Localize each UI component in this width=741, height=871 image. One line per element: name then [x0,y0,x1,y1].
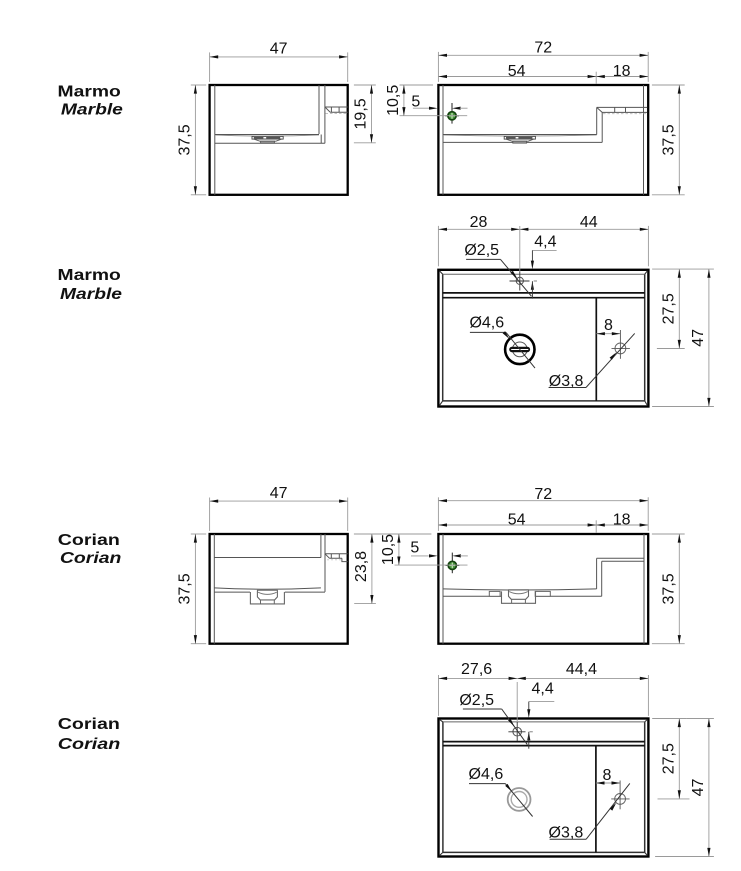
svg-text:18: 18 [613,511,631,528]
svg-text:47: 47 [270,41,288,58]
svg-text:8: 8 [602,767,611,784]
svg-text:Ø2,5: Ø2,5 [464,242,499,259]
svg-text:Ø4,6: Ø4,6 [469,766,504,783]
svg-text:37,5: 37,5 [661,124,678,155]
svg-text:44: 44 [580,214,598,231]
svg-text:Corian: Corian [58,532,120,549]
svg-text:47: 47 [690,329,707,347]
svg-text:72: 72 [534,486,552,503]
svg-text:27,5: 27,5 [661,293,678,324]
svg-text:Corian: Corian [58,736,120,753]
svg-text:Marmo: Marmo [58,83,122,100]
svg-text:47: 47 [270,485,288,502]
svg-text:Corian: Corian [58,716,120,733]
svg-text:Corian: Corian [60,550,122,567]
svg-text:Ø2,5: Ø2,5 [459,692,494,709]
svg-text:27,5: 27,5 [661,743,678,774]
svg-text:10,5: 10,5 [380,534,397,565]
svg-text:54: 54 [508,511,526,528]
svg-text:4,4: 4,4 [531,681,553,698]
svg-text:47: 47 [690,779,707,797]
svg-text:28: 28 [470,214,488,231]
svg-text:Marble: Marble [60,286,122,303]
svg-text:44,4: 44,4 [566,661,597,678]
svg-text:Ø4,6: Ø4,6 [469,315,504,332]
svg-text:19,5: 19,5 [353,98,370,129]
svg-text:72: 72 [534,39,552,56]
svg-text:27,6: 27,6 [461,661,492,678]
svg-text:37,5: 37,5 [177,573,194,604]
svg-text:18: 18 [613,63,631,80]
svg-text:23,8: 23,8 [353,551,370,582]
svg-text:4,4: 4,4 [534,233,556,250]
svg-text:54: 54 [508,63,526,80]
svg-text:Marble: Marble [61,102,123,119]
svg-text:Marmo: Marmo [58,267,122,284]
svg-text:10,5: 10,5 [385,85,402,116]
svg-text:37,5: 37,5 [661,573,678,604]
svg-text:37,5: 37,5 [177,124,194,155]
svg-text:8: 8 [604,317,613,334]
svg-text:5: 5 [410,539,419,556]
